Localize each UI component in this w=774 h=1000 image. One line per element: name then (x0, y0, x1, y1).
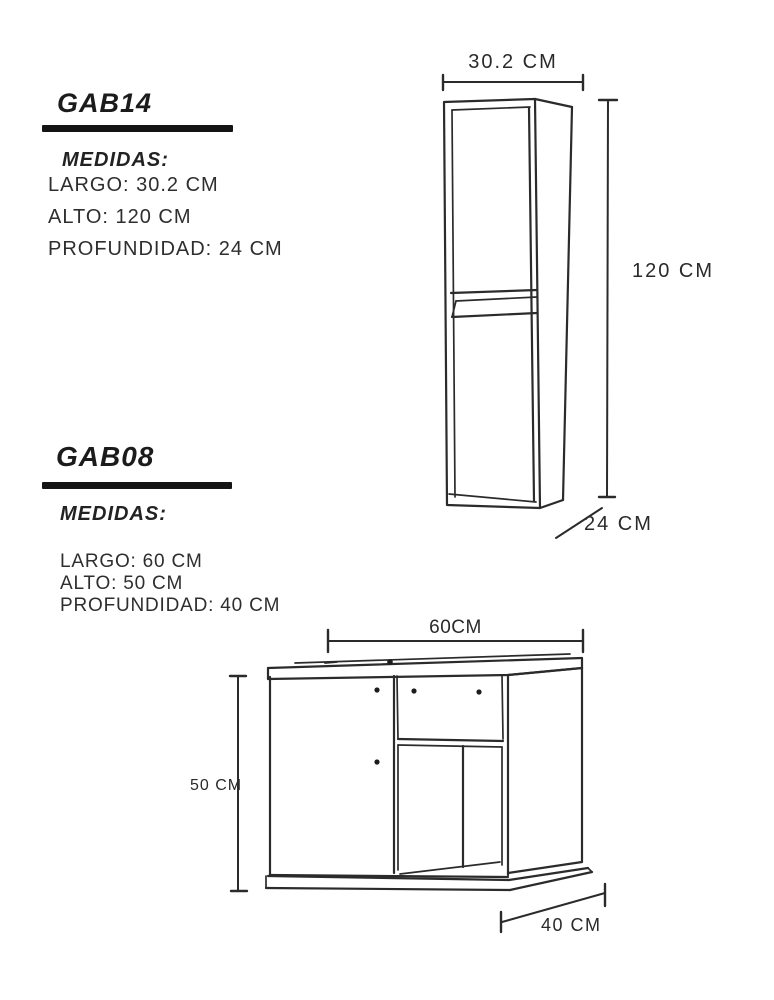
gab14-cabinet-outline (444, 99, 572, 508)
gab08-title-underline-bar (42, 482, 232, 489)
gab08-cabinet-outline (266, 654, 592, 890)
gab08-spec-alto: ALTO: 50 CM (60, 573, 183, 595)
gab08-medidas-heading: MEDIDAS: (60, 503, 167, 526)
gab08-height-dimension-line (230, 676, 247, 891)
gab08-width-dimension-line (328, 630, 583, 652)
gab08-faucet-hole (387, 659, 393, 665)
gab14-depth-dimension-line (556, 508, 602, 538)
gab08-spec-profundidad: PROFUNDIDAD: 40 CM (60, 595, 280, 617)
gab08-door-knob-bottom (374, 759, 379, 764)
gab14-spec-largo: LARGO: 30.2 CM (48, 174, 219, 197)
gab08-depth-dimension-line (501, 884, 605, 932)
gab08-product-code: GAB08 (56, 441, 154, 473)
gab14-height-dimension-line (599, 100, 617, 497)
gab08-drawer-knob-left (411, 688, 416, 693)
gab14-spec-alto: ALTO: 120 CM (48, 206, 192, 229)
gab08-cabinet-drawing (225, 615, 625, 950)
gab14-product-code: GAB14 (57, 88, 152, 119)
gab14-medidas-heading: MEDIDAS: (62, 149, 169, 172)
gab08-drawer-knob-right (476, 689, 481, 694)
gab08-door-knob-top (374, 687, 379, 692)
gab14-cabinet-drawing (425, 40, 705, 570)
gab14-width-dimension-line (443, 75, 583, 90)
gab14-title-underline-bar (42, 125, 233, 132)
gab14-spec-profundidad: PROFUNDIDAD: 24 CM (48, 238, 283, 261)
gab08-spec-largo: LARGO: 60 CM (60, 551, 203, 573)
